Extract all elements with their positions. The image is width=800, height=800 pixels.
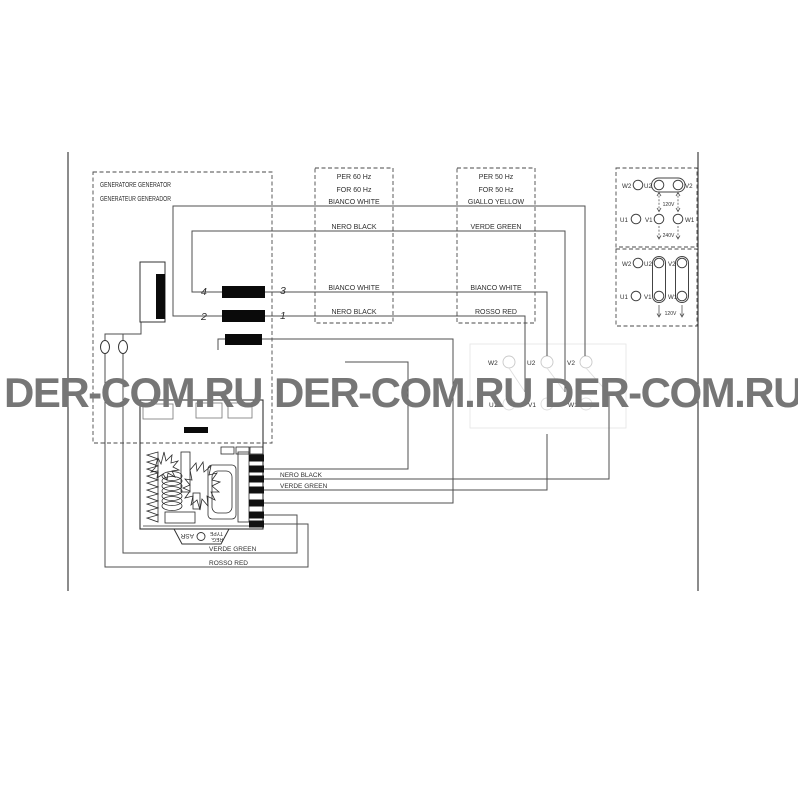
freq60-title2: FOR 60 Hz — [336, 187, 372, 194]
terminal-block-240-box — [616, 168, 697, 247]
tb240-v1-terminal — [654, 214, 664, 224]
regulator-terminal-strip — [249, 455, 264, 528]
tb120-label-u2: U2 — [644, 261, 652, 268]
tb120-u2-terminal — [654, 258, 664, 268]
brush-terminal-1 — [101, 341, 110, 354]
wiring-diagram-page: W2 U2 V2 U1 V1 W1 4 3 — [0, 0, 800, 800]
central-label-w2: W2 — [488, 360, 498, 367]
plate-type-label: TYPE — [209, 530, 223, 536]
freq50-title1: PER 50 Hz — [479, 174, 514, 181]
tb240-w1-terminal — [673, 214, 683, 224]
generator-box-labels: GENERATORE GENERATOR GENERATEUR GENERADO… — [100, 182, 171, 203]
tb240-label-u1: U1 — [620, 217, 628, 224]
wire-bianco-giallo-to-v2 — [173, 206, 585, 356]
verde-green-bottom-label: VERDE GREEN — [209, 546, 257, 553]
plate-asr-label: ASR — [180, 532, 194, 539]
freq60-wire1-label: BIANCO WHITE — [328, 199, 380, 206]
wire-bianco-to-u2 — [265, 292, 547, 356]
freq50-wire3-label: BIANCO WHITE — [470, 285, 522, 292]
tb120-label-v2: V2 — [668, 261, 676, 268]
tb120-w1-terminal — [677, 291, 687, 301]
plate-circle-mark — [197, 533, 205, 541]
tb120-v1-terminal — [654, 291, 664, 301]
nero-black-wire-label: NERO BLACK — [280, 472, 323, 479]
coil-ring-7 — [162, 502, 182, 511]
reg-terminal-6 — [249, 512, 264, 519]
coil-ring-2 — [162, 477, 182, 486]
freq50-wire2-label: VERDE GREEN — [471, 224, 522, 231]
tb120-dim-label: 120V — [665, 311, 677, 317]
freq50-wire4-label: ROSSO RED — [475, 309, 517, 316]
reg-terminal-4 — [249, 487, 264, 494]
tb120-label-v1: V1 — [644, 294, 652, 301]
tb240-u2-terminal — [654, 180, 664, 190]
freq50-wire1-label: GIALLO YELLOW — [468, 199, 525, 206]
generator-label-line1: GENERATORE GENERATOR — [100, 182, 171, 189]
coil-ring-4 — [162, 487, 182, 496]
freq60-wire2-label: NERO BLACK — [331, 224, 376, 231]
burst-shape-small — [151, 452, 179, 480]
tb240-label-w2: W2 — [622, 183, 632, 190]
coil-ring-5 — [162, 492, 182, 501]
freq50-title2: FOR 50 Hz — [478, 187, 514, 194]
connector-bar-aux — [225, 334, 262, 345]
tb240-u1-terminal — [631, 214, 641, 224]
burst-shape-large — [183, 462, 220, 510]
terminal-number-3: 3 — [280, 285, 286, 297]
central-u2-terminal — [541, 356, 553, 368]
terminal-number-4: 4 — [201, 286, 207, 298]
watermark-text-3: DER-COM.RU — [544, 369, 798, 416]
freq60-title1: PER 60 Hz — [337, 174, 372, 181]
tb240-label-u2: U2 — [644, 183, 652, 190]
coil-ring-3 — [162, 482, 182, 491]
central-label-v2: V2 — [567, 360, 575, 367]
wire-bar3-left-stub — [218, 339, 225, 350]
top-terminal-3 — [250, 447, 263, 454]
terminal-number-2: 2 — [200, 311, 207, 323]
right-component-bar — [238, 452, 249, 522]
verde-green-wire-label: VERDE GREEN — [280, 483, 328, 490]
reg-terminal-3 — [249, 476, 264, 483]
watermark-text-1: DER-COM.RU — [4, 369, 262, 416]
wire-verde-green-regulator — [264, 434, 547, 490]
tb120-u1-terminal — [631, 291, 641, 301]
tb120-w2-terminal — [633, 258, 643, 268]
reg-terminal-7 — [249, 521, 264, 528]
freq60-wire3-label: BIANCO WHITE — [328, 285, 380, 292]
generator-label-line2: GENERATEUR GENERADOR — [100, 196, 171, 203]
reg-terminal-5 — [249, 500, 264, 507]
top-terminal-1 — [221, 447, 234, 454]
regulator-plate-text-group: REG. TYPE ASR — [180, 530, 223, 542]
tb120-label-w2: W2 — [622, 261, 632, 268]
regulator: REG. TYPE ASR — [140, 400, 264, 544]
freq50-labels: PER 50 Hz FOR 50 Hz GIALLO YELLOW VERDE … — [468, 174, 525, 316]
regulator-top-black-bar — [184, 427, 208, 433]
tb240-dim240-label: 240V — [663, 233, 675, 239]
regulator-internals — [143, 403, 263, 523]
terminal-block-120: W2 U2 V2 U1 V1 W1 120V — [620, 257, 689, 318]
tb240-label-v2: V2 — [685, 183, 693, 190]
wire-exciter-to-brushes — [105, 322, 141, 340]
tb120-label-w1: W1 — [668, 294, 678, 301]
reg-terminal-2 — [249, 466, 264, 473]
central-label-u2: U2 — [527, 360, 536, 367]
coil-ring-1 — [162, 472, 182, 481]
coil-ring-6 — [162, 497, 182, 506]
connector-bar-2-1 — [222, 310, 265, 322]
rosso-red-bottom-label: ROSSO RED — [209, 560, 248, 567]
connector-bars — [222, 286, 265, 345]
freq60-labels: PER 60 Hz FOR 60 Hz BIANCO WHITE NERO BL… — [328, 174, 380, 316]
watermark: DER-COM.RUDER-COM.RUDER-COM.RU — [4, 369, 798, 417]
tb120-v2-terminal — [677, 258, 687, 268]
exciter-core-bar — [156, 274, 165, 319]
tb240-w2-terminal — [633, 180, 643, 190]
tb240-label-v1: V1 — [645, 217, 653, 224]
watermark-text-2: DER-COM.RU — [274, 369, 532, 416]
freq60-wire4-label: NERO BLACK — [331, 309, 376, 316]
terminal-number-1: 1 — [280, 310, 286, 322]
reg-terminal-1 — [249, 455, 264, 462]
tb240-v2-terminal — [673, 180, 683, 190]
central-w2-terminal — [503, 356, 515, 368]
brush-terminal-2 — [119, 341, 128, 354]
connector-bar-4-3 — [222, 286, 265, 298]
tb240-dim120-label: 120V — [663, 202, 675, 208]
generator-exciter — [101, 262, 166, 354]
component-bar-bottom — [165, 512, 195, 523]
terminal-block-240: W2 U2 V2 U1 V1 W1 120V 240V — [620, 178, 695, 239]
tb240-label-w1: W1 — [685, 217, 695, 224]
central-v2-terminal — [580, 356, 592, 368]
tb120-label-u1: U1 — [620, 294, 628, 301]
